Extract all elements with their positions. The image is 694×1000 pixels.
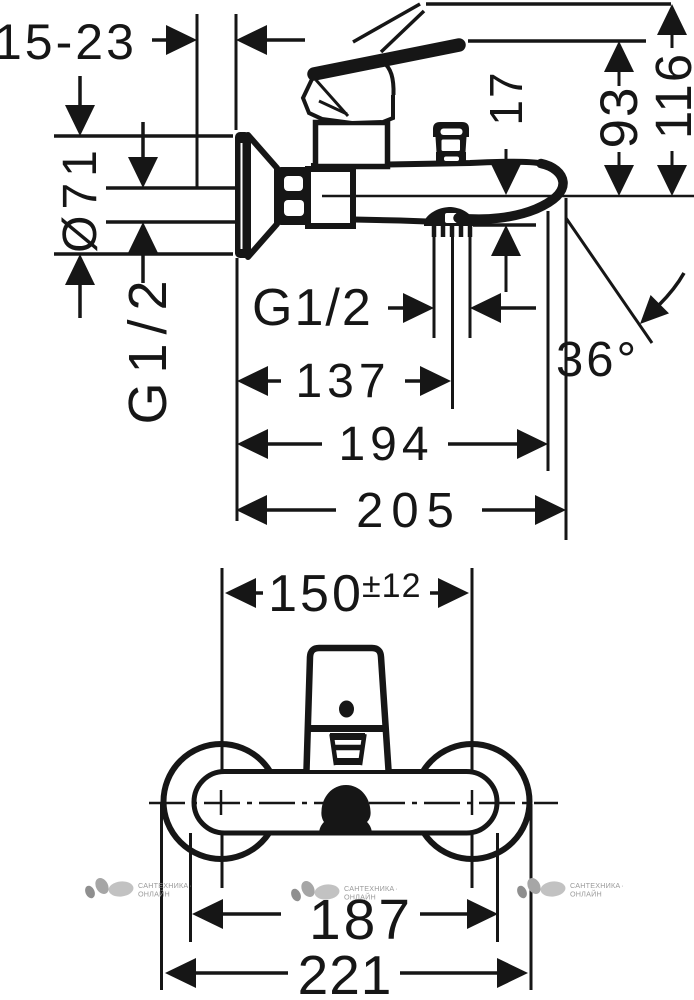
svg-text:ОНЛАЙН: ОНЛАЙН [138, 890, 170, 899]
svg-text:205: 205 [356, 484, 462, 538]
svg-text:36°: 36° [556, 333, 639, 387]
svg-text:Ø71: Ø71 [54, 144, 107, 253]
svg-text:221: 221 [298, 944, 393, 1000]
svg-text:G1/2: G1/2 [118, 271, 178, 424]
svg-text:150: 150 [268, 565, 364, 623]
svg-text:194: 194 [338, 418, 433, 471]
svg-text:±12: ±12 [362, 567, 421, 605]
svg-text:ОНЛАЙН: ОНЛАЙН [570, 890, 602, 899]
svg-text:ОНЛАЙН: ОНЛАЙН [344, 893, 376, 902]
svg-text:137: 137 [295, 355, 390, 408]
svg-text:116: 116 [645, 52, 694, 139]
svg-text:17: 17 [480, 70, 532, 125]
svg-text:93: 93 [590, 86, 649, 149]
svg-text:G1/2: G1/2 [252, 279, 373, 337]
svg-text:15-23: 15-23 [0, 14, 137, 70]
